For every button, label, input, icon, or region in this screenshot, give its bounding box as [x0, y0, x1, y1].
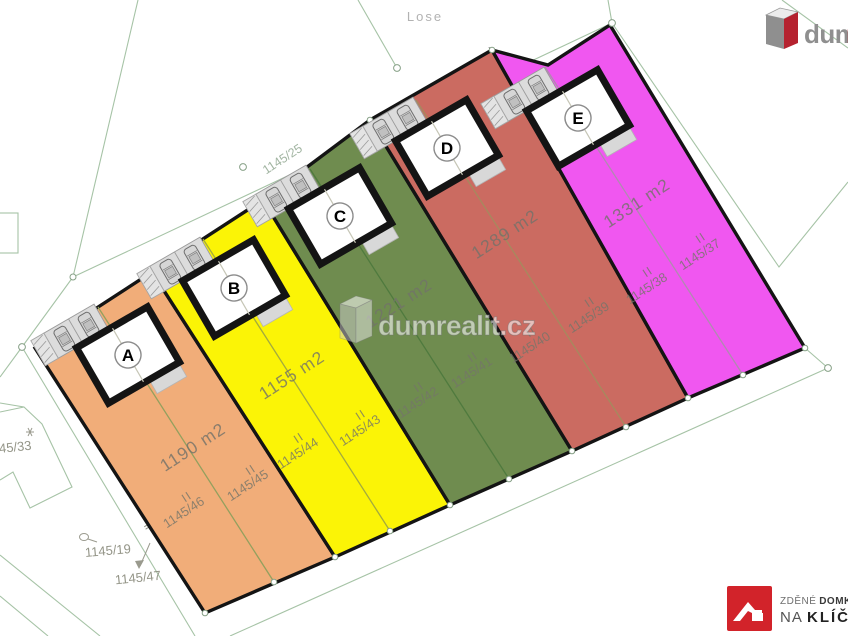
builder-line2-bold: KLÍČ: [807, 608, 848, 626]
house-letter-a: A: [122, 346, 134, 365]
builder-line2-regular: NA: [780, 609, 803, 626]
street-label: Lose: [407, 9, 443, 24]
builder-logo-line1: ZDĚNÉ DOMKY®: [780, 594, 848, 607]
builder-line1-regular: ZDĚNÉ: [780, 594, 816, 607]
site-plan-map: Lose 1145/25 1145/33 1145/19 1145/47 II: [0, 0, 848, 636]
builder-logo-line2: NA KLÍČ: [780, 608, 848, 626]
dumrealit-text-gray: dum: [804, 19, 848, 49]
house-letter-b: B: [228, 279, 240, 298]
watermark-cube-icon: [340, 296, 372, 343]
house-letter-c: C: [334, 207, 346, 226]
house-letter-d: D: [441, 139, 453, 158]
watermark-text: dumrealit.cz: [378, 310, 535, 341]
house-letter-e: E: [572, 109, 583, 128]
builder-line1-bold: DOMKY: [819, 596, 848, 607]
dumrealit-cube-icon: [766, 8, 798, 49]
site-plan-page: Lose 1145/25 1145/33 1145/19 1145/47 II: [0, 0, 848, 636]
